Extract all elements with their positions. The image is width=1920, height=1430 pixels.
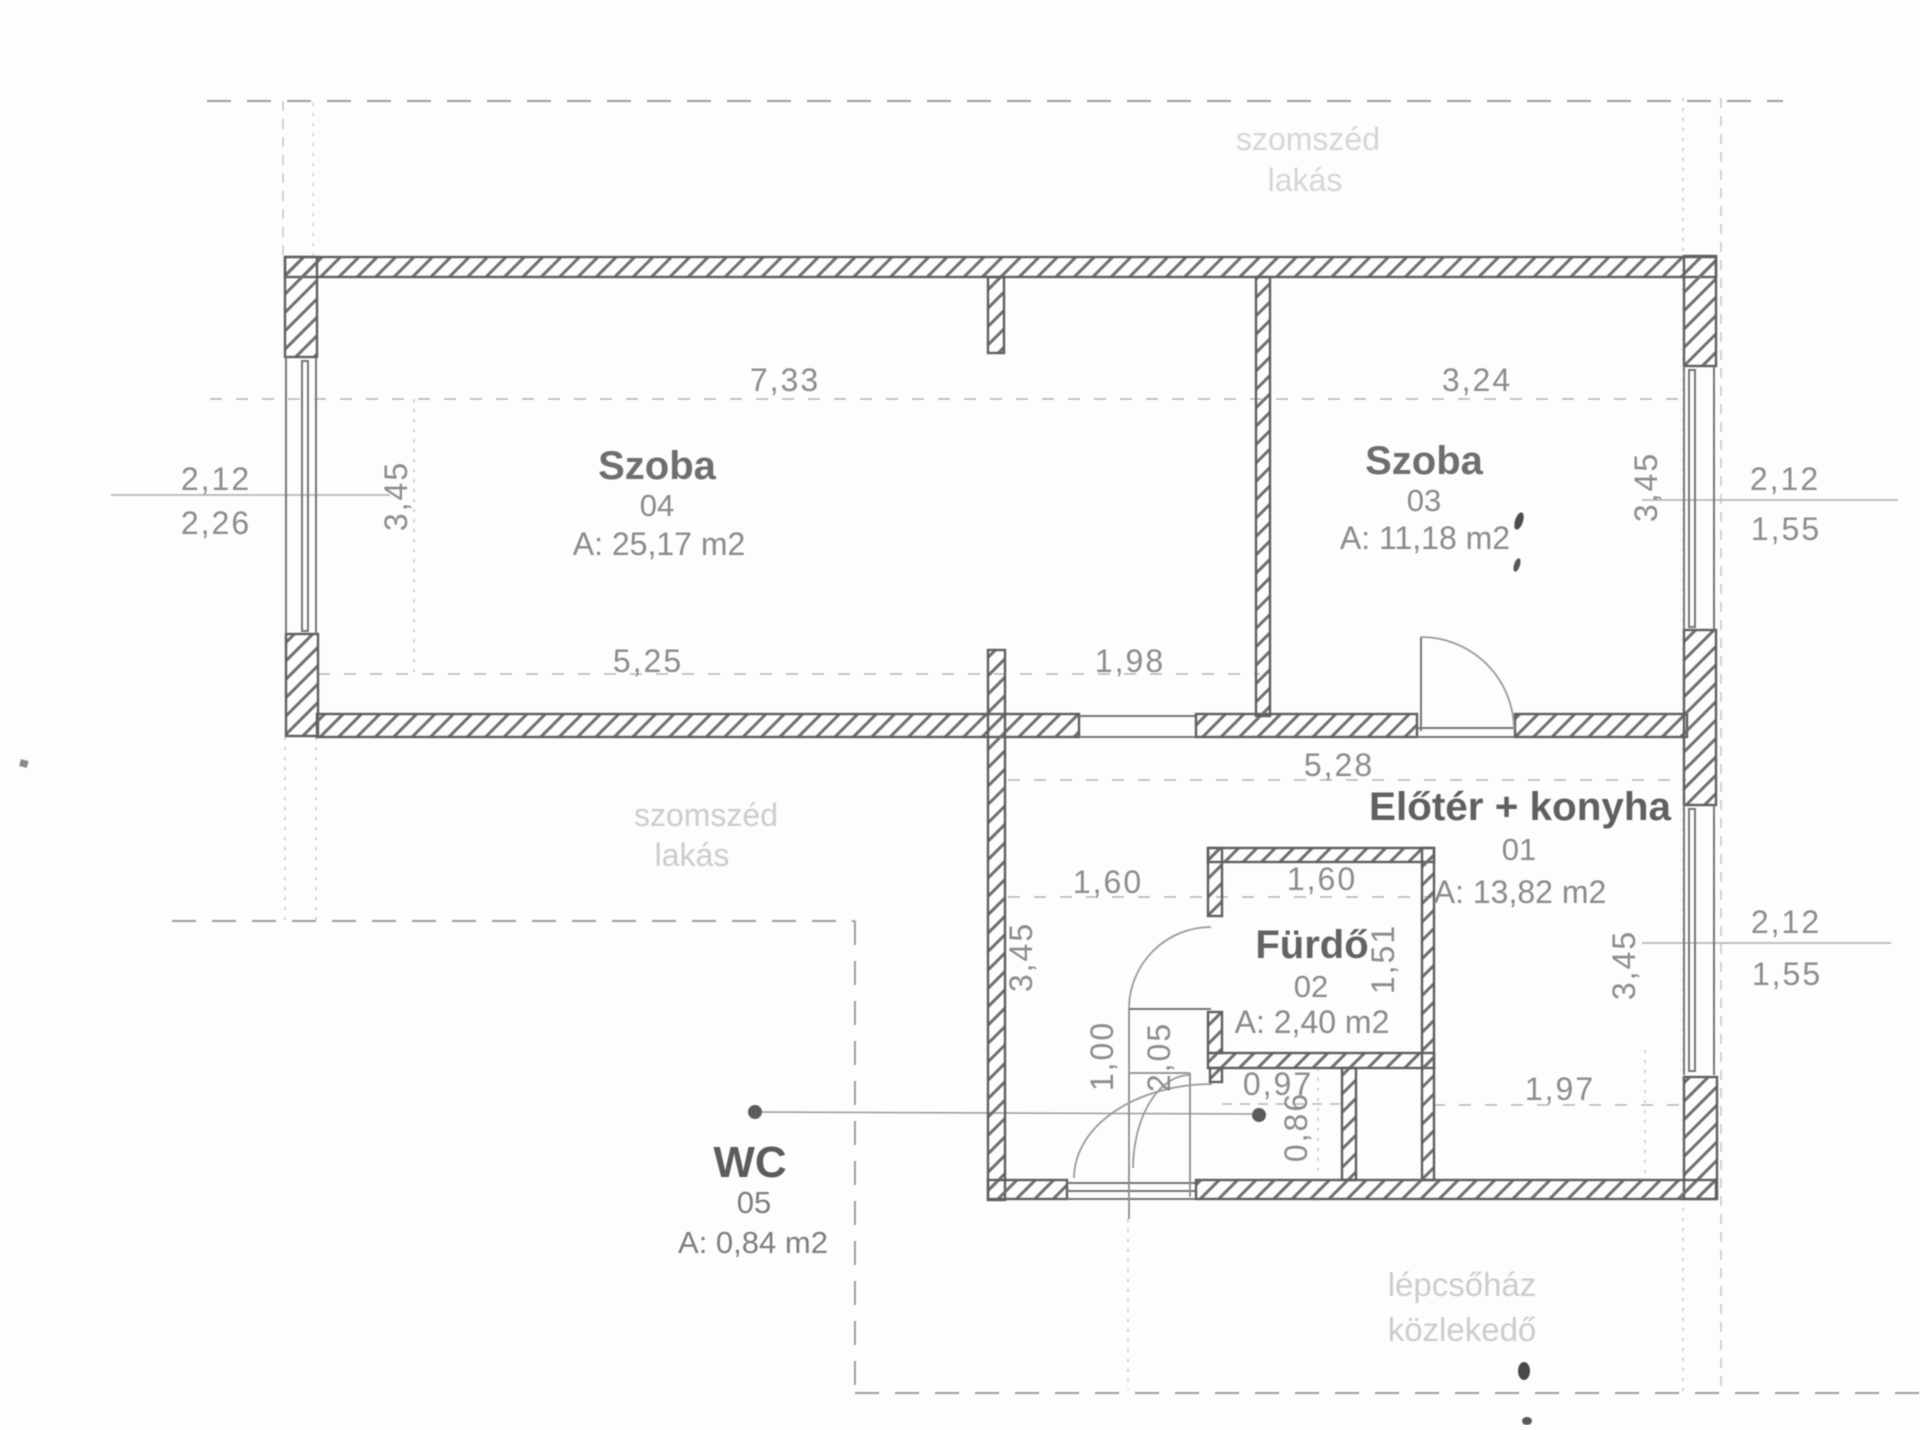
svg-text:01: 01: [1502, 832, 1536, 867]
svg-text:1,98: 1,98: [1095, 643, 1165, 679]
svg-text:5,25: 5,25: [613, 643, 683, 679]
svg-text:szomszéd: szomszéd: [1236, 121, 1380, 157]
svg-text:1,55: 1,55: [1752, 956, 1822, 992]
svg-text:2,05: 2,05: [1141, 1022, 1177, 1092]
svg-text:lakás: lakás: [1268, 162, 1343, 198]
svg-text:WC: WC: [713, 1138, 786, 1187]
svg-text:Szoba: Szoba: [1365, 439, 1484, 483]
svg-text:szomszéd: szomszéd: [634, 797, 778, 833]
svg-text:A: 11,18 m2: A: 11,18 m2: [1340, 520, 1510, 556]
svg-text:05: 05: [737, 1185, 771, 1220]
svg-text:A: 13,82 m2: A: 13,82 m2: [1434, 874, 1607, 910]
svg-text:A: 2,40 m2: A: 2,40 m2: [1235, 1004, 1390, 1040]
svg-text:Előtér + konyha: Előtér + konyha: [1369, 785, 1672, 829]
svg-text:3,24: 3,24: [1442, 362, 1512, 398]
svg-text:A: 25,17 m2: A: 25,17 m2: [573, 526, 746, 562]
svg-text:1,55: 1,55: [1751, 511, 1821, 547]
svg-text:03: 03: [1407, 483, 1441, 518]
svg-text:közlekedő: közlekedő: [1388, 1311, 1537, 1348]
svg-text:lakás: lakás: [655, 837, 730, 873]
svg-text:lépcsőház: lépcsőház: [1388, 1266, 1537, 1303]
svg-text:Fürdő: Fürdő: [1255, 923, 1368, 967]
svg-text:1,60: 1,60: [1287, 861, 1357, 897]
svg-text:1,97: 1,97: [1525, 1071, 1595, 1107]
svg-text:3,45: 3,45: [1628, 452, 1664, 522]
svg-text:04: 04: [640, 488, 674, 523]
svg-text:3,45: 3,45: [1003, 922, 1039, 992]
svg-text:7,33: 7,33: [750, 362, 820, 398]
svg-text:1,00: 1,00: [1084, 1021, 1120, 1091]
svg-text:5,28: 5,28: [1304, 747, 1374, 783]
svg-text:3,45: 3,45: [378, 461, 414, 531]
svg-text:2,12: 2,12: [181, 461, 251, 497]
svg-text:2,26: 2,26: [181, 505, 251, 541]
svg-text:1,51: 1,51: [1365, 924, 1401, 994]
svg-text:A: 0,84 m2: A: 0,84 m2: [678, 1225, 828, 1260]
svg-text:2,12: 2,12: [1750, 461, 1820, 497]
svg-text:02: 02: [1294, 969, 1328, 1004]
svg-text:3,45: 3,45: [1606, 930, 1642, 1000]
svg-text:Szoba: Szoba: [598, 444, 717, 488]
svg-text:1,60: 1,60: [1073, 864, 1143, 900]
svg-text:0,86: 0,86: [1278, 1092, 1314, 1162]
svg-text:2,12: 2,12: [1751, 904, 1821, 940]
